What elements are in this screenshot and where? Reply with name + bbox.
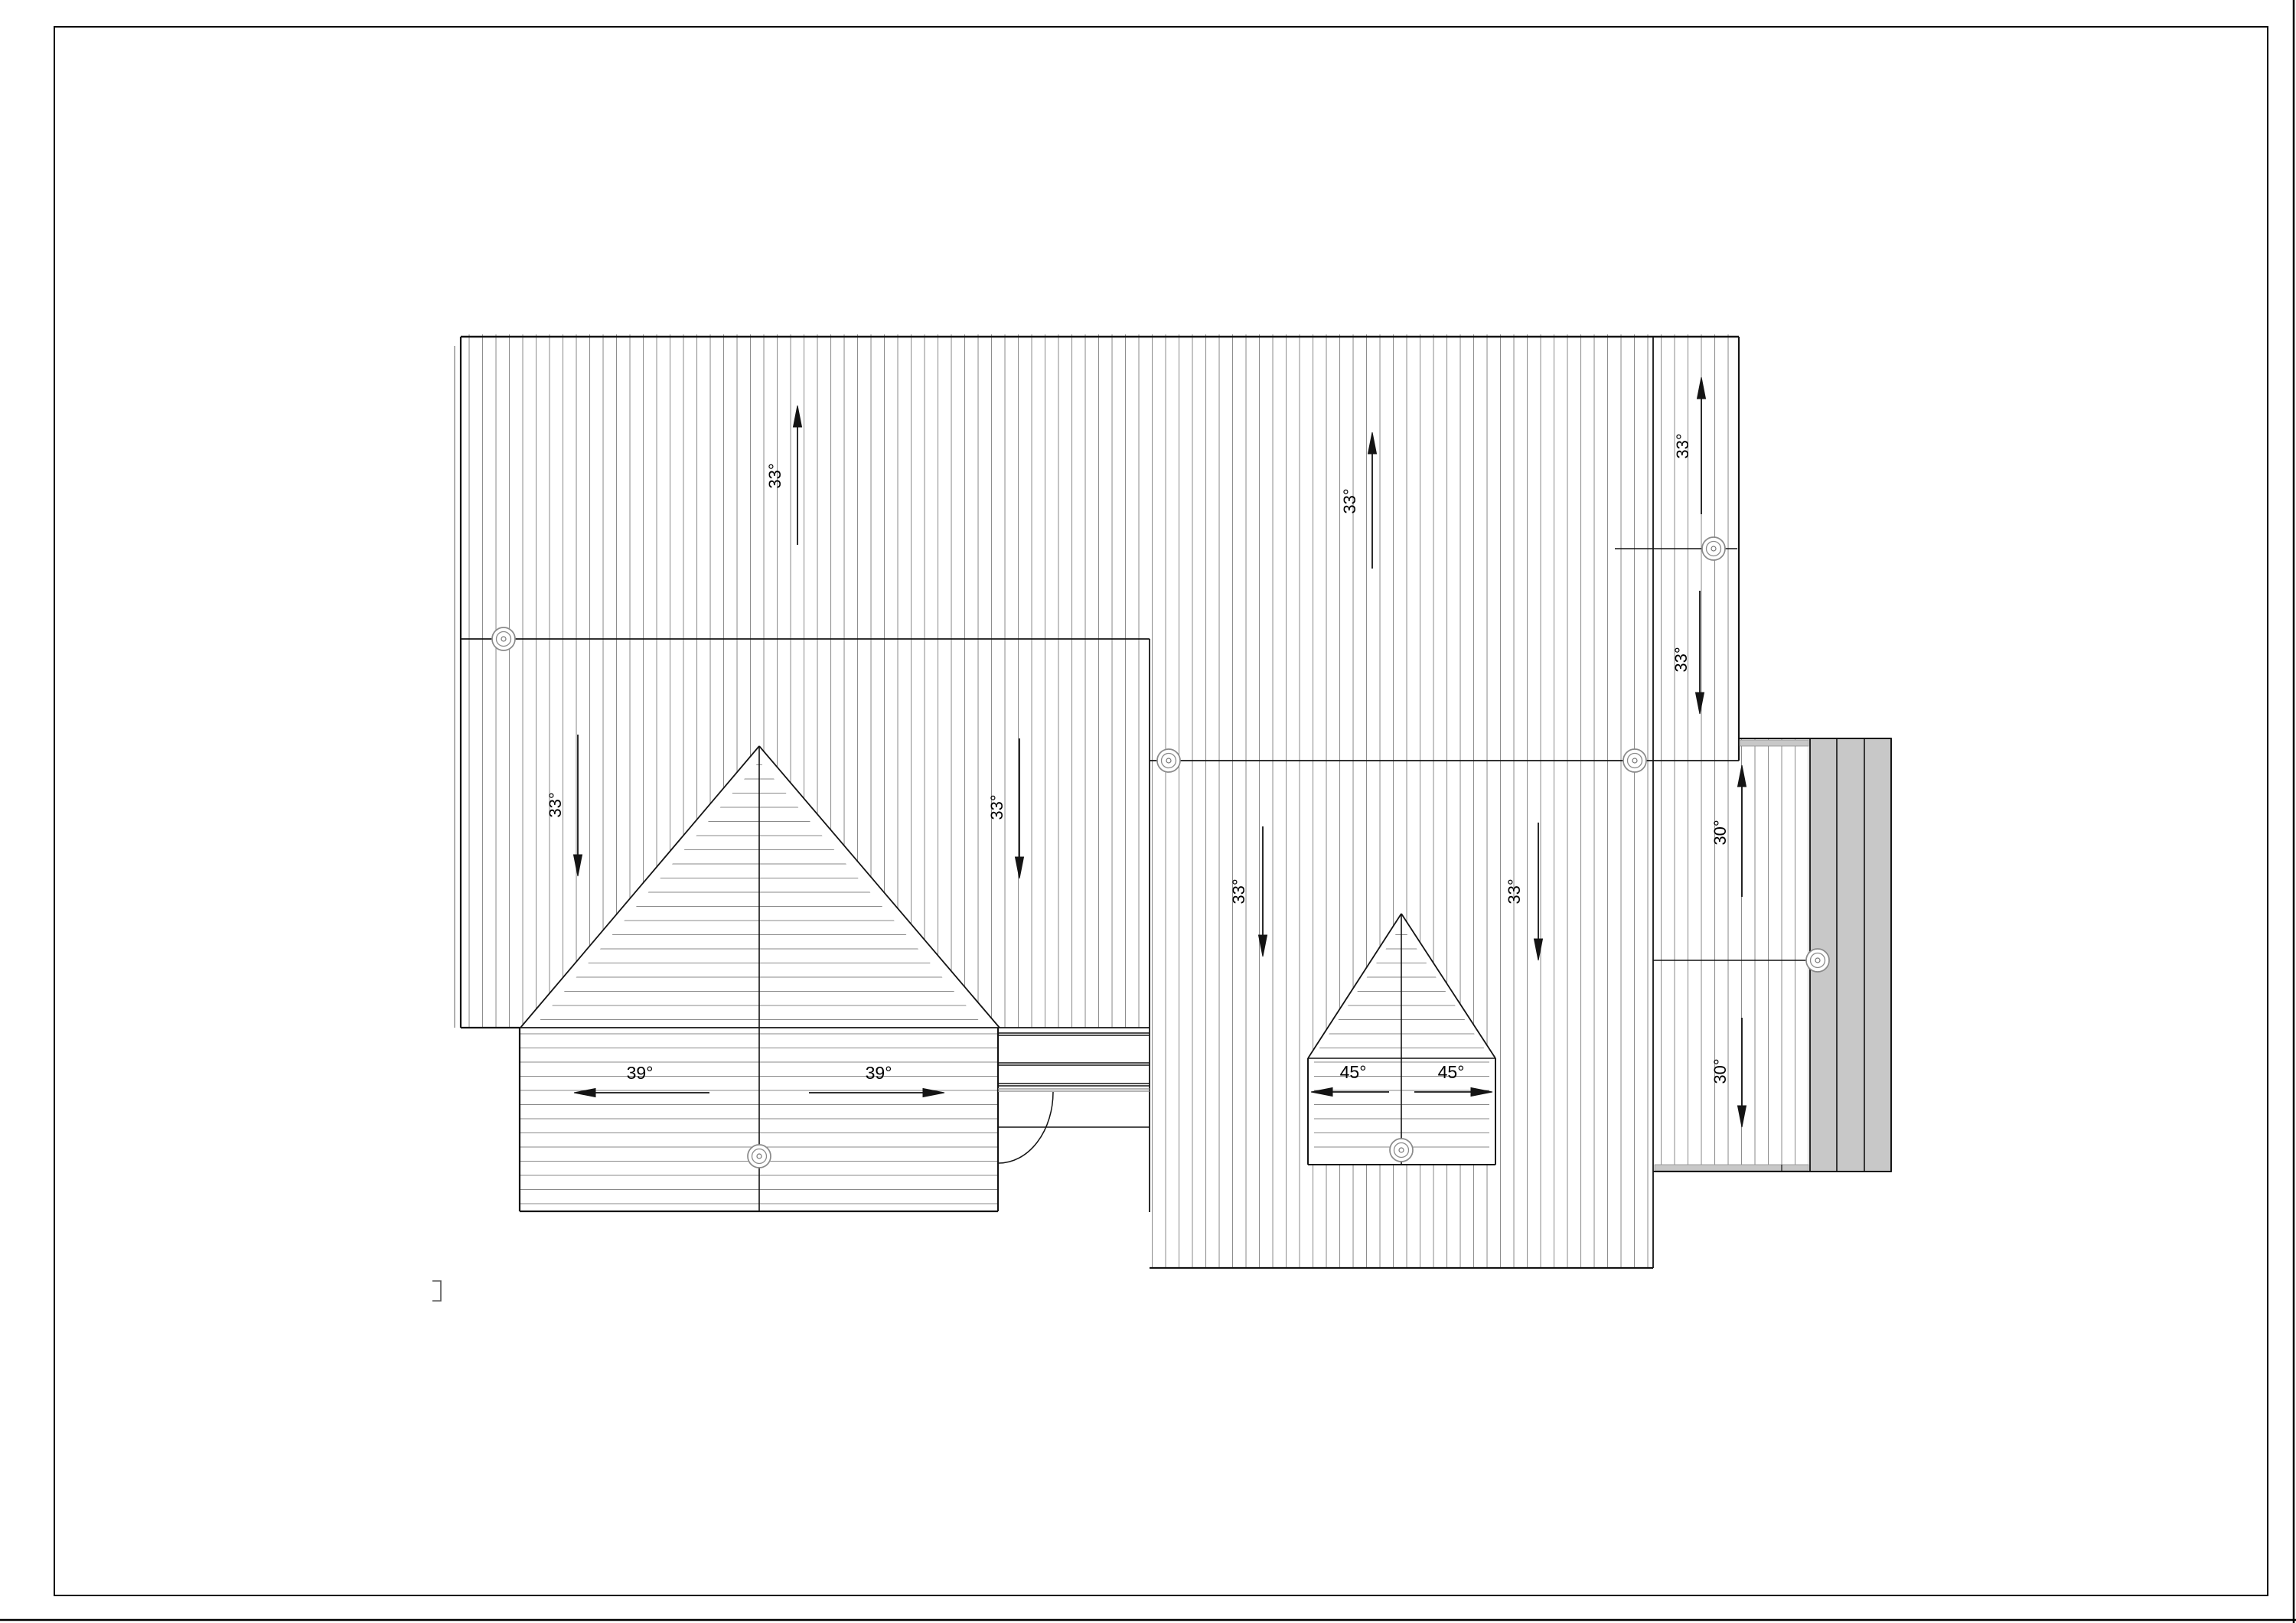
angle-label: 45°: [1340, 1062, 1367, 1082]
roof-plane-left-lower-east: [1000, 639, 1150, 1028]
angle-label: 45°: [1438, 1062, 1465, 1082]
angle-label: 30°: [1711, 1058, 1730, 1084]
roof-vent-symbol: [1623, 749, 1646, 772]
sheet-marker-bracket: [432, 1281, 441, 1301]
roof-plane-upper-right: [1150, 334, 1739, 761]
angle-label: 33°: [1340, 488, 1359, 513]
drawing-sheet: 33° 33° 33° 33° 33° 33° 33° 33° 30° 30° …: [0, 0, 2296, 1623]
roof-vent-symbol: [1157, 749, 1180, 772]
angle-label: 33°: [987, 794, 1006, 820]
angle-label: 33°: [1673, 433, 1692, 458]
angle-label: 30°: [1711, 820, 1730, 845]
roof-vent-symbol: [1702, 537, 1725, 560]
roof-vent-symbol: [748, 1145, 771, 1168]
angle-label: 33°: [765, 463, 784, 488]
roof-plan-drawing: 33° 33° 33° 33° 33° 33° 33° 33° 30° 30° …: [0, 0, 2296, 1623]
angle-label: 39°: [866, 1063, 892, 1083]
roof-vent-symbol: [1390, 1139, 1413, 1162]
roof-vent-symbol: [492, 627, 515, 650]
roof-vent-symbol: [1806, 949, 1829, 972]
angle-label: 33°: [1671, 647, 1691, 672]
angle-label: 33°: [546, 792, 565, 817]
connector-strips: [998, 1028, 1150, 1163]
wing-bottom-gray-strip: [1655, 1165, 1808, 1171]
angle-label: 33°: [1229, 878, 1248, 904]
angle-label: 39°: [627, 1063, 654, 1083]
roof-plane-upper-left: [461, 334, 1150, 639]
roof-plane-left-lower-west: [461, 639, 520, 1028]
angle-label: 33°: [1505, 878, 1524, 904]
wing-top-gray-strip: [1740, 740, 1808, 746]
roof-plane-wing: [1653, 738, 1808, 1172]
